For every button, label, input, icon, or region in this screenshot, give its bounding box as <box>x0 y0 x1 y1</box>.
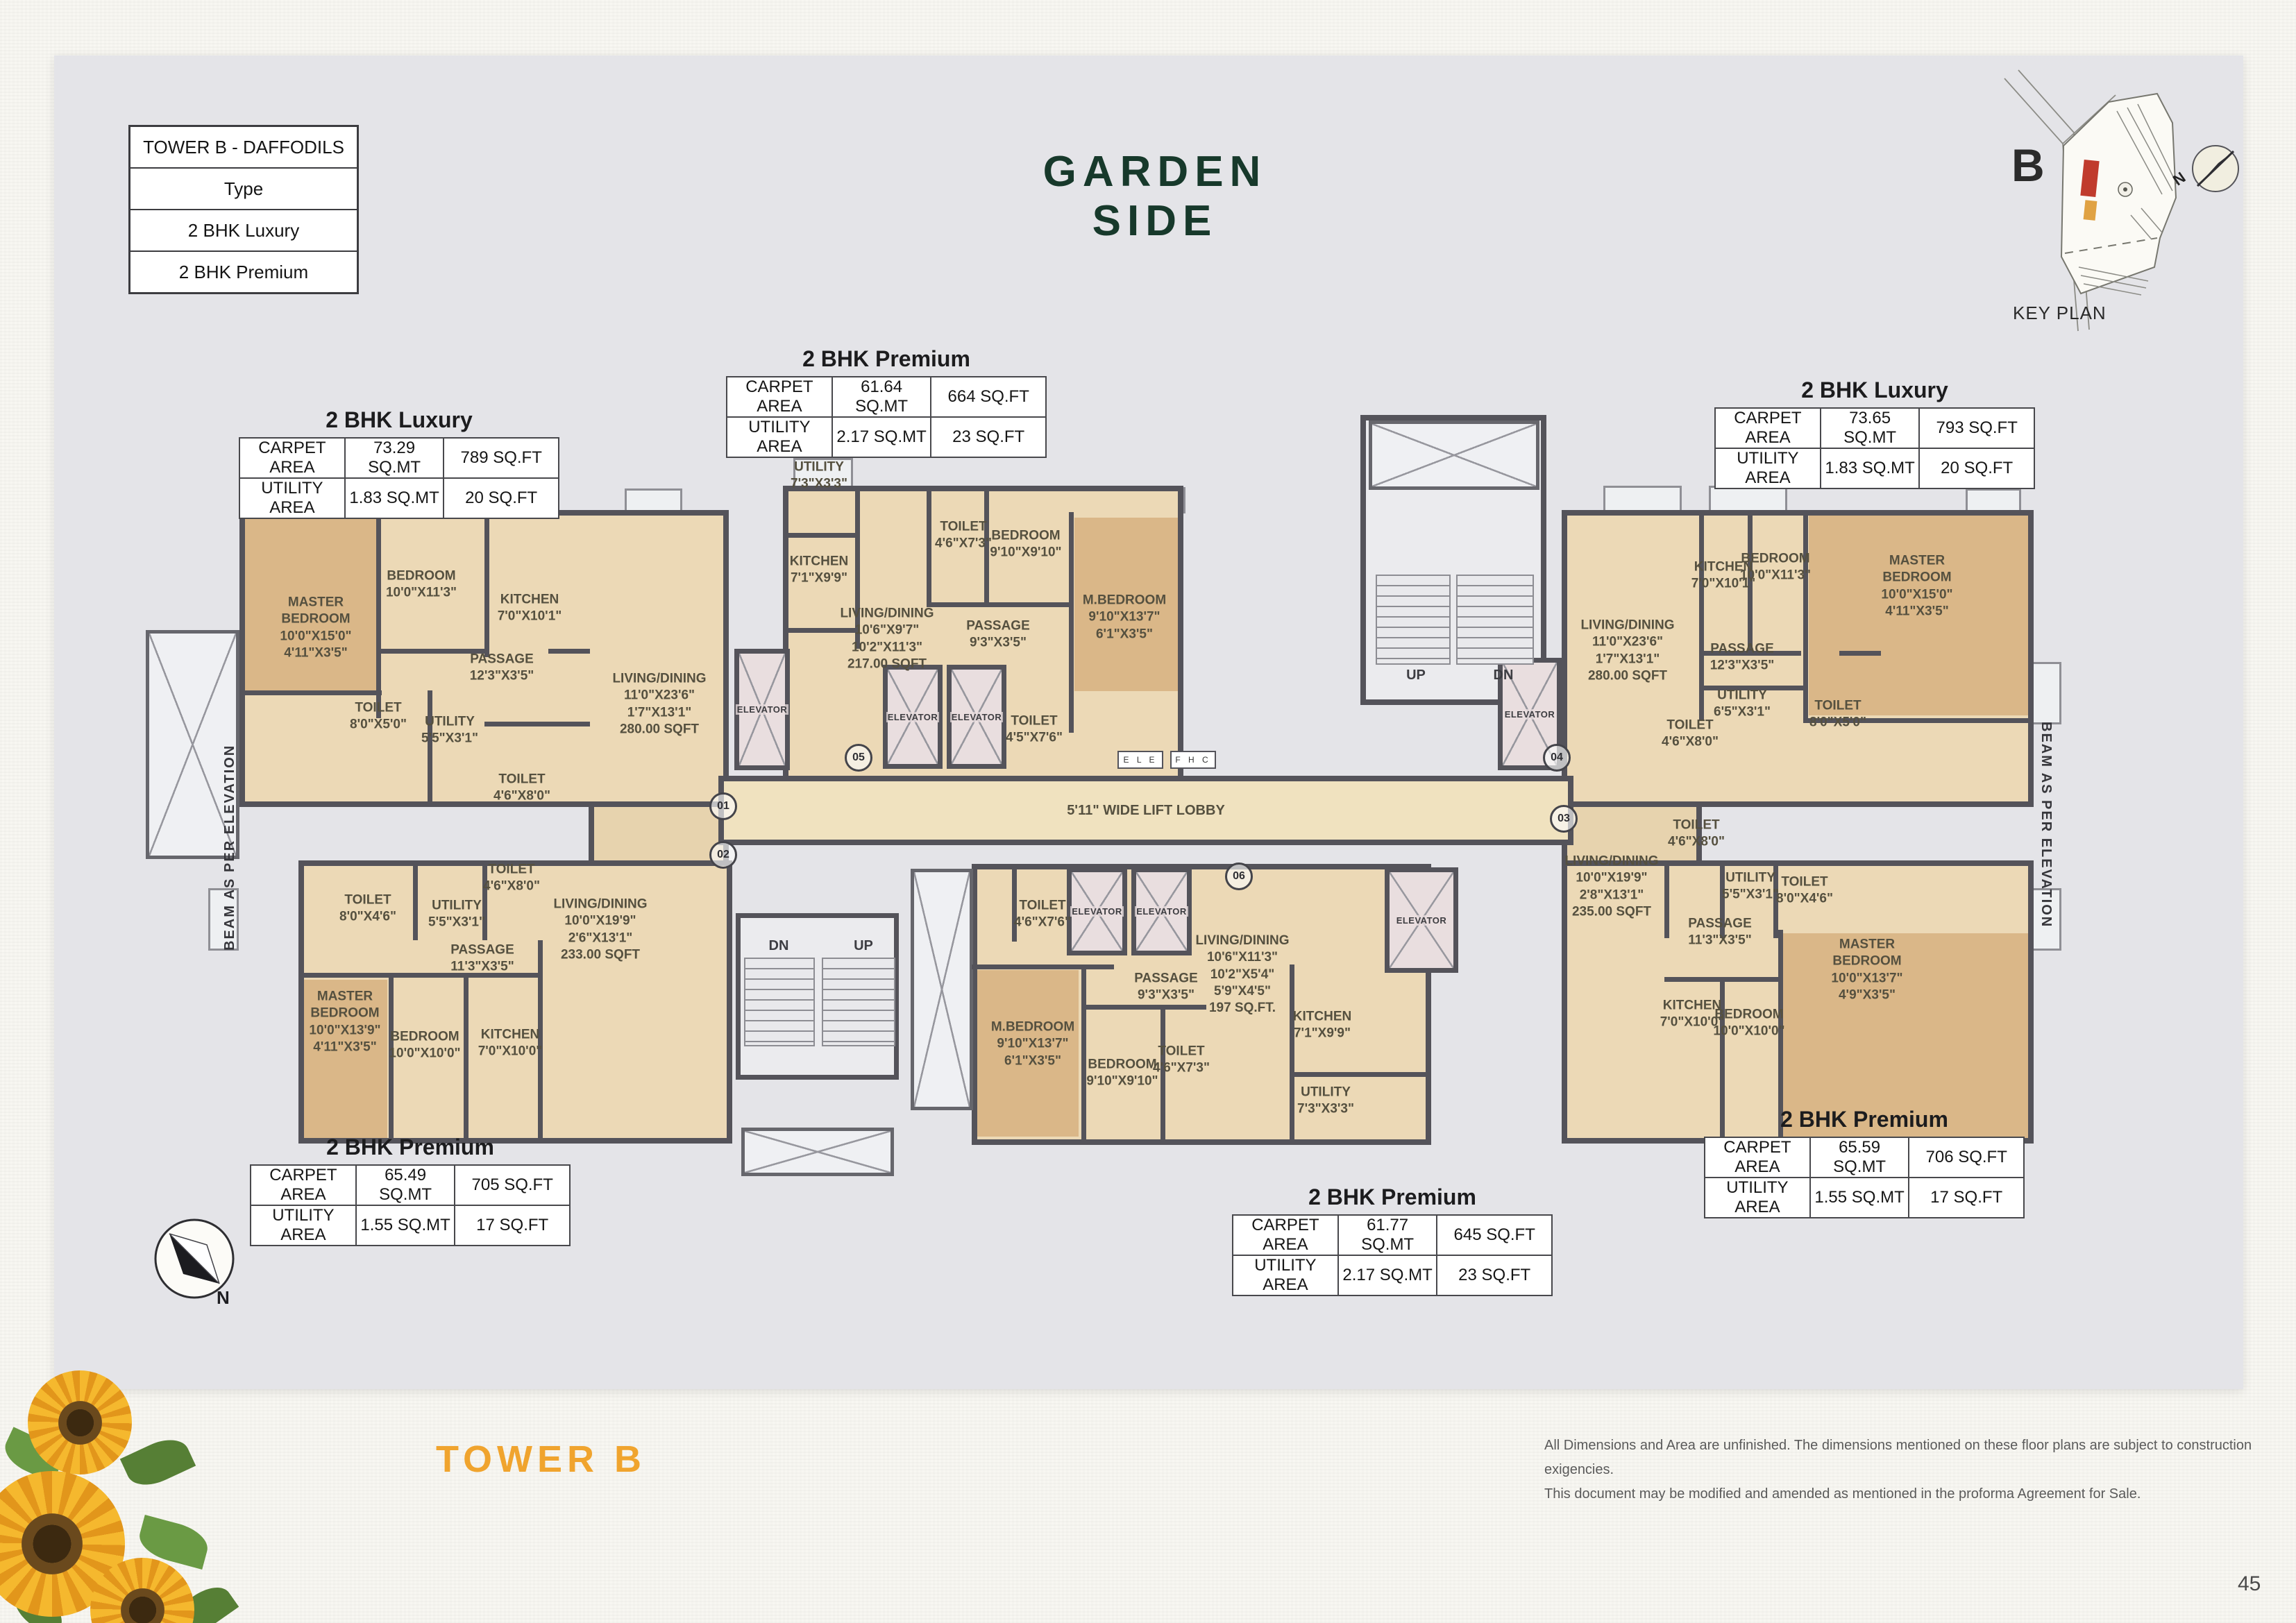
stair-treads <box>1456 575 1534 665</box>
page-number: 45 <box>2238 1572 2261 1596</box>
area-table-grid: CARPET AREA65.59 SQ.MT706 SQ.FTUTILITY A… <box>1704 1137 2025 1218</box>
room-label: MASTER BEDROOM 10'0"X15'0" 4'11"X3'5" <box>280 594 351 661</box>
room-label: MASTER BEDROOM 10'0"X13'7" 4'9"X3'5" <box>1831 936 1902 1003</box>
balcony-ledge <box>1603 486 1682 513</box>
elevator-label: ELEVATOR <box>1135 906 1188 917</box>
room-label: PASSAGE 12'3"X3'5" <box>470 652 534 686</box>
interior-wall <box>1803 510 1808 720</box>
tower-name: TOWER B - DAFFODILS <box>130 127 357 167</box>
type-header: Type <box>130 167 357 209</box>
room-label: TOILET 8'0"X4'6" <box>339 892 396 926</box>
room-label: BEDROOM 10'0"X10'0" <box>389 1029 460 1063</box>
room-label: PASSAGE 12'3"X3'5" <box>1710 641 1775 675</box>
room-label: TOILET 8'0"X5'0" <box>350 700 407 734</box>
area-table-cell: CARPET AREA <box>251 1165 356 1205</box>
area-table-cell: 73.65 SQ.MT <box>1821 408 1920 448</box>
interior-wall <box>972 965 1114 969</box>
room-label: TOILET 4'6"X8'0" <box>493 772 550 806</box>
room-label: TOILET 4'6"X7'6" <box>1014 898 1071 932</box>
stair-treads <box>822 958 895 1046</box>
room-label: KITCHEN 7'1"X9'9" <box>1293 1009 1351 1043</box>
elevator-label: ELEVATOR <box>736 704 789 715</box>
tower-footer-label: TOWER B <box>436 1438 646 1481</box>
tower-info-table: TOWER B - DAFFODILS Type 2 BHK Luxury 2 … <box>128 125 359 294</box>
area-table-title: 2 BHK Luxury <box>1714 377 2035 407</box>
sunflower-decoration <box>28 1370 132 1475</box>
area-table-cell: 2.17 SQ.MT <box>832 417 931 457</box>
room-label: UTILITY 5'5"X3'1" <box>421 714 478 748</box>
beam-label-left: BEAM AS PER ELEVATION <box>222 722 238 951</box>
duct-label: E L E <box>1117 751 1163 769</box>
interior-wall <box>1081 969 1086 1141</box>
area-table-cell: UTILITY AREA <box>1705 1178 1810 1218</box>
interior-wall <box>1290 1072 1428 1077</box>
unit-number: 06 <box>1225 863 1253 890</box>
compass-north-label: N <box>217 1287 230 1309</box>
area-table-title: 2 BHK Luxury <box>239 407 559 437</box>
page-title: GARDEN SIDE <box>974 147 1335 246</box>
area-table-cell: 1.83 SQ.MT <box>345 478 444 518</box>
area-table-grid: CARPET AREA73.29 SQ.MT789 SQ.FTUTILITY A… <box>239 437 559 519</box>
area-table-cell: CARPET AREA <box>1715 408 1821 448</box>
structural-void <box>911 869 973 1110</box>
disclaimer-line-2: This document may be modified and amende… <box>1544 1482 2280 1506</box>
area-table-cell: 61.64 SQ.MT <box>832 377 931 417</box>
area-table-grid: CARPET AREA65.49 SQ.MT705 SQ.FTUTILITY A… <box>250 1164 571 1246</box>
elevator-label: ELEVATOR <box>886 712 940 722</box>
room-label: KITCHEN 7'0"X10'0" <box>478 1027 543 1061</box>
room-label: M.BEDROOM 9'10"X13'7" 6'1"X3'5" <box>991 1019 1074 1070</box>
lift-lobby-label: 5'11" WIDE LIFT LOBBY <box>718 776 1573 845</box>
area-table-cell: 1.55 SQ.MT <box>1810 1178 1909 1218</box>
room-label: UTILITY 7'3"X3'3" <box>1297 1085 1354 1119</box>
area-table-cell: 23 SQ.FT <box>931 417 1046 457</box>
area-table-cell: 17 SQ.FT <box>455 1205 570 1246</box>
interior-wall <box>1069 512 1074 733</box>
area-table-cell: CARPET AREA <box>1233 1215 1338 1255</box>
room-label: M.BEDROOM 9'10"X13'7" 6'1"X3'5" <box>1083 593 1166 643</box>
room-label: KITCHEN 7'1"X9'9" <box>790 554 848 588</box>
area-table-cell: UTILITY AREA <box>727 417 832 457</box>
interior-wall <box>464 973 469 1141</box>
room-label: BEDROOM 10'0"X11'3" <box>386 568 457 602</box>
room-label: LIVING/DINING 10'0"X19'9" 2'8"X13'1" 235… <box>1564 853 1658 920</box>
disclaimer-line-1: All Dimensions and Area are unfinished. … <box>1544 1434 2280 1482</box>
balcony-ledge <box>2031 662 2061 724</box>
disclaimer-text: All Dimensions and Area are unfinished. … <box>1544 1434 2280 1506</box>
room-label: PASSAGE 11'3"X3'5" <box>450 942 514 976</box>
room-label: BEDROOM 9'10"X9'10" <box>990 528 1061 562</box>
area-table-cell: 20 SQ.FT <box>1919 448 2034 488</box>
elevator-shaft: ELEVATOR <box>947 665 1006 769</box>
room-label: TOILET 4'6"X8'0" <box>483 862 540 896</box>
room-label: BEDROOM 10'0"X10'0" <box>1713 1007 1784 1041</box>
area-table-cell: 17 SQ.FT <box>1909 1178 2024 1218</box>
balcony-ledge <box>1709 486 1787 513</box>
area-table-title: 2 BHK Premium <box>1704 1106 2025 1137</box>
area-table-title: 2 BHK Premium <box>250 1134 571 1164</box>
stair-treads <box>744 958 815 1046</box>
interior-wall <box>548 649 590 654</box>
interior-wall <box>413 860 418 940</box>
area-table-cell: 706 SQ.FT <box>1909 1137 2024 1178</box>
elevator-shaft: ELEVATOR <box>883 665 943 769</box>
interior-wall <box>927 602 1069 607</box>
area-table: 2 BHK LuxuryCARPET AREA73.65 SQ.MT793 SQ… <box>1714 377 2035 489</box>
interior-wall <box>927 486 931 604</box>
leaf-decoration <box>120 1431 196 1494</box>
area-table-cell: 1.55 SQ.MT <box>356 1205 455 1246</box>
room-label: TOILET 4'6"X8'0" <box>1668 817 1725 851</box>
stair-treads <box>1376 575 1451 665</box>
key-plan-sketch <box>1999 59 2242 333</box>
type-premium: 2 BHK Premium <box>130 250 357 292</box>
area-table-cell: 645 SQ.FT <box>1437 1215 1552 1255</box>
area-table-cell: 20 SQ.FT <box>444 478 559 518</box>
room-label: MASTER BEDROOM 10'0"X13'9" 4'11"X3'5" <box>309 988 380 1055</box>
stairs-up-label: UP <box>854 938 873 954</box>
elevator-shaft: ELEVATOR <box>1067 867 1127 955</box>
key-plan-caption: KEY PLAN <box>2013 303 2117 324</box>
room-label: LIVING/DINING 11'0"X23'6" 1'7"X13'1" 280… <box>1580 617 1674 684</box>
room-label: LIVING/DINING 10'0"X19'9" 2'6"X13'1" 233… <box>553 896 647 963</box>
area-table: 2 BHK PremiumCARPET AREA65.59 SQ.MT706 S… <box>1704 1106 2025 1218</box>
room-label: MASTER BEDROOM 10'0"X15'0" 4'11"X3'5" <box>1881 552 1952 620</box>
room-label: TOILET 4'6"X7'3" <box>1153 1044 1210 1078</box>
interior-wall <box>484 510 489 657</box>
interior-wall <box>428 690 432 805</box>
room-label: TOILET 4'6"X7'3" <box>935 519 992 553</box>
area-table: 2 BHK LuxuryCARPET AREA73.29 SQ.MT789 SQ… <box>239 407 559 519</box>
room-label: LIVING/DINING 10'6"X9'7" 10'2"X11'3" 217… <box>840 605 934 672</box>
room-label: LIVING/DINING 11'0"X23'6" 1'7"X13'1" 280… <box>612 670 706 738</box>
room-label: UTILITY 6'5"X3'1" <box>1714 688 1771 722</box>
area-table-title: 2 BHK Premium <box>1232 1184 1553 1214</box>
room-label: BEDROOM 9'10"X9'10" <box>1086 1057 1158 1091</box>
beam-label-right: BEAM AS PER ELEVATION <box>2038 722 2054 951</box>
room-label: PASSAGE 9'3"X3'5" <box>1134 971 1198 1005</box>
elevator-label: ELEVATOR <box>1503 709 1557 720</box>
area-table-cell: CARPET AREA <box>239 438 345 478</box>
area-table-title: 2 BHK Premium <box>726 346 1047 376</box>
area-table: 2 BHK PremiumCARPET AREA65.49 SQ.MT705 S… <box>250 1134 571 1246</box>
area-table-cell: 2.17 SQ.MT <box>1338 1255 1437 1295</box>
area-table-cell: UTILITY AREA <box>1233 1255 1338 1295</box>
duct-label: F H C <box>1170 751 1216 769</box>
interior-wall <box>376 510 381 718</box>
area-table-cell: CARPET AREA <box>727 377 832 417</box>
structural-void <box>741 1128 894 1176</box>
room-label: UTILITY 5'5"X3'1" <box>428 898 485 932</box>
elevator-label: ELEVATOR <box>1395 915 1449 926</box>
room-label: TOILET 8'0"X4'6" <box>1776 874 1833 908</box>
area-table-cell: 705 SQ.FT <box>455 1165 570 1205</box>
interior-wall <box>783 533 855 538</box>
room-label: UTILITY 5'5"X3'1" <box>1722 870 1779 904</box>
type-luxury: 2 BHK Luxury <box>130 209 357 250</box>
area-table-cell: 23 SQ.FT <box>1437 1255 1552 1295</box>
area-table-cell: UTILITY AREA <box>251 1205 356 1246</box>
area-table-cell: 789 SQ.FT <box>444 438 559 478</box>
unit-number: 02 <box>709 841 737 869</box>
brochure-page: TOWER B - DAFFODILS Type 2 BHK Luxury 2 … <box>0 0 2296 1623</box>
room-label: LIVING/DINING 10'6"X11'3" 10'2"X5'4" 5'9… <box>1195 933 1289 1017</box>
unit-number: 05 <box>845 744 872 772</box>
interior-wall <box>484 722 590 726</box>
unit-number: 04 <box>1543 744 1571 772</box>
elevator-shaft: ELEVATOR <box>734 649 790 770</box>
elevator-label: ELEVATOR <box>1070 906 1124 917</box>
key-plan-building-label: B <box>2011 139 2045 192</box>
area-table-cell: UTILITY AREA <box>1715 448 1821 488</box>
room-label: TOILET 4'6"X8'0" <box>1662 717 1719 751</box>
interior-wall <box>1081 1005 1206 1010</box>
room-label: PASSAGE 9'3"X3'5" <box>966 618 1030 652</box>
interior-wall <box>1839 651 1881 656</box>
area-table-cell: 65.49 SQ.MT <box>356 1165 455 1205</box>
area-table: 2 BHK PremiumCARPET AREA61.64 SQ.MT664 S… <box>726 346 1047 458</box>
interior-wall <box>239 690 382 695</box>
area-table-grid: CARPET AREA61.64 SQ.MT664 SQ.FTUTILITY A… <box>726 376 1047 458</box>
area-table-grid: CARPET AREA61.77 SQ.MT645 SQ.FTUTILITY A… <box>1232 1214 1553 1296</box>
area-table-cell: CARPET AREA <box>1705 1137 1810 1178</box>
room-label: PASSAGE 11'3"X3'5" <box>1688 916 1752 950</box>
elevator-shaft: ELEVATOR <box>1385 867 1458 973</box>
stairs-dn-label: DN <box>1494 668 1514 683</box>
area-table-cell: 793 SQ.FT <box>1919 408 2034 448</box>
room-label: BEDROOM 10'0"X11'3" <box>1740 551 1811 585</box>
elevator-shaft: ELEVATOR <box>1131 867 1192 955</box>
interior-wall <box>1664 860 1669 938</box>
area-table-cell: 664 SQ.FT <box>931 377 1046 417</box>
area-table-cell: 73.29 SQ.MT <box>345 438 444 478</box>
room-label: TOILET 8'0"X5'0" <box>1809 698 1866 732</box>
stairs-dn-label: DN <box>769 938 789 954</box>
structural-void <box>1369 420 1539 490</box>
elevator-label: ELEVATOR <box>950 712 1004 722</box>
interior-wall <box>1290 965 1294 1141</box>
area-table-grid: CARPET AREA73.65 SQ.MT793 SQ.FTUTILITY A… <box>1714 407 2035 489</box>
area-table-cell: UTILITY AREA <box>239 478 345 518</box>
area-table: 2 BHK PremiumCARPET AREA61.77 SQ.MT645 S… <box>1232 1184 1553 1296</box>
stairs-up-label: UP <box>1406 668 1426 683</box>
area-table-cell: 61.77 SQ.MT <box>1338 1215 1437 1255</box>
room-label: TOILET 4'5"X7'6" <box>1006 713 1063 747</box>
room-label: KITCHEN 7'0"X10'1" <box>498 592 562 626</box>
area-table-cell: 65.59 SQ.MT <box>1810 1137 1909 1178</box>
area-table-cell: 1.83 SQ.MT <box>1821 448 1920 488</box>
room-label: UTILITY 7'3"X3'3" <box>791 459 847 493</box>
